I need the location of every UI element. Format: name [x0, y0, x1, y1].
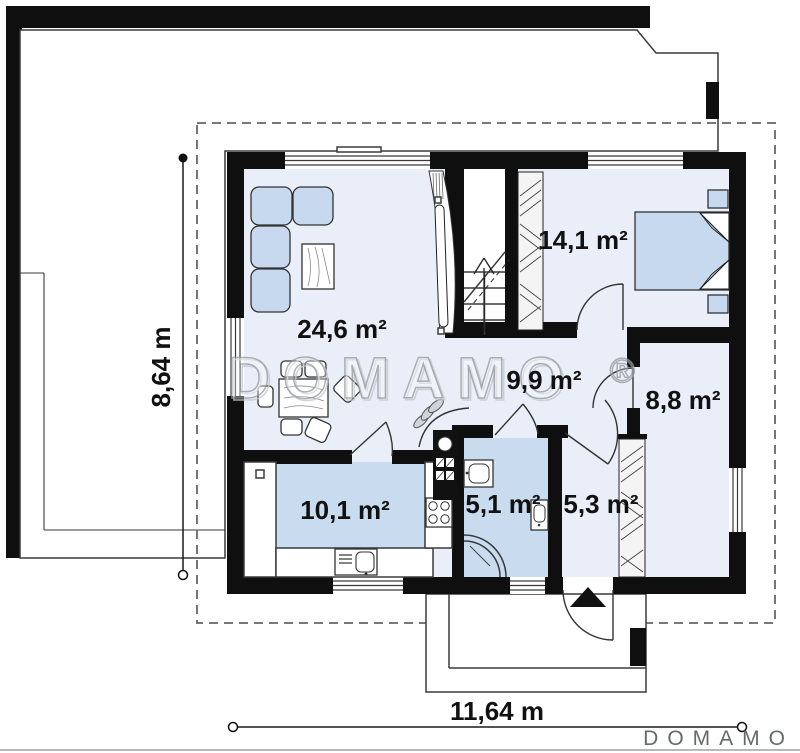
- kitchen-area-label: 10,1 m²: [300, 495, 390, 525]
- window-sill: [337, 147, 381, 152]
- brand-logo: DOMAMO: [643, 727, 794, 750]
- kitchen-sink: [335, 549, 377, 576]
- height-dimension-label: 8,64 m: [146, 327, 176, 408]
- roof-edge-top-bar: [6, 6, 650, 28]
- porch-pillar: [630, 628, 646, 666]
- floor-plan-drawing: DOMAMO DOMAMO ® 24,6 m² 14,1 m² 9,9 m² 8…: [0, 0, 800, 753]
- bedroom-area-label: 14,1 m²: [538, 225, 628, 255]
- width-dimension-label: 11,64 m: [450, 696, 544, 726]
- side-table: [302, 244, 334, 289]
- bathroom-window-bottom: [510, 577, 545, 594]
- stove: [426, 498, 452, 527]
- room-area-label: 8,8 m²: [645, 385, 720, 415]
- floor-plan-page: DOMAMO DOMAMO ® 24,6 m² 14,1 m² 9,9 m² 8…: [0, 0, 800, 753]
- kitchen-window-bottom: [333, 577, 403, 594]
- living-room-area-label: 24,6 m²: [297, 314, 387, 344]
- door-handle: [435, 197, 441, 203]
- hall-area-label: 9,9 m²: [506, 365, 581, 395]
- nightstand: [708, 295, 728, 313]
- watermark-registered-mark: ®: [610, 352, 635, 390]
- entry-hall-area-label: 5,3 m²: [563, 489, 638, 519]
- bathroom-area-label: 5,1 m²: [465, 489, 540, 519]
- door-handle: [438, 328, 444, 334]
- nightstand: [708, 190, 728, 208]
- washbasin: [464, 460, 493, 487]
- room-window-right: [729, 468, 746, 532]
- counter-detail: [256, 470, 264, 478]
- kitchen-tall-unit: [433, 430, 457, 500]
- chimney: [706, 82, 719, 119]
- bed: [635, 212, 729, 290]
- bedroom-window-top: [588, 152, 683, 169]
